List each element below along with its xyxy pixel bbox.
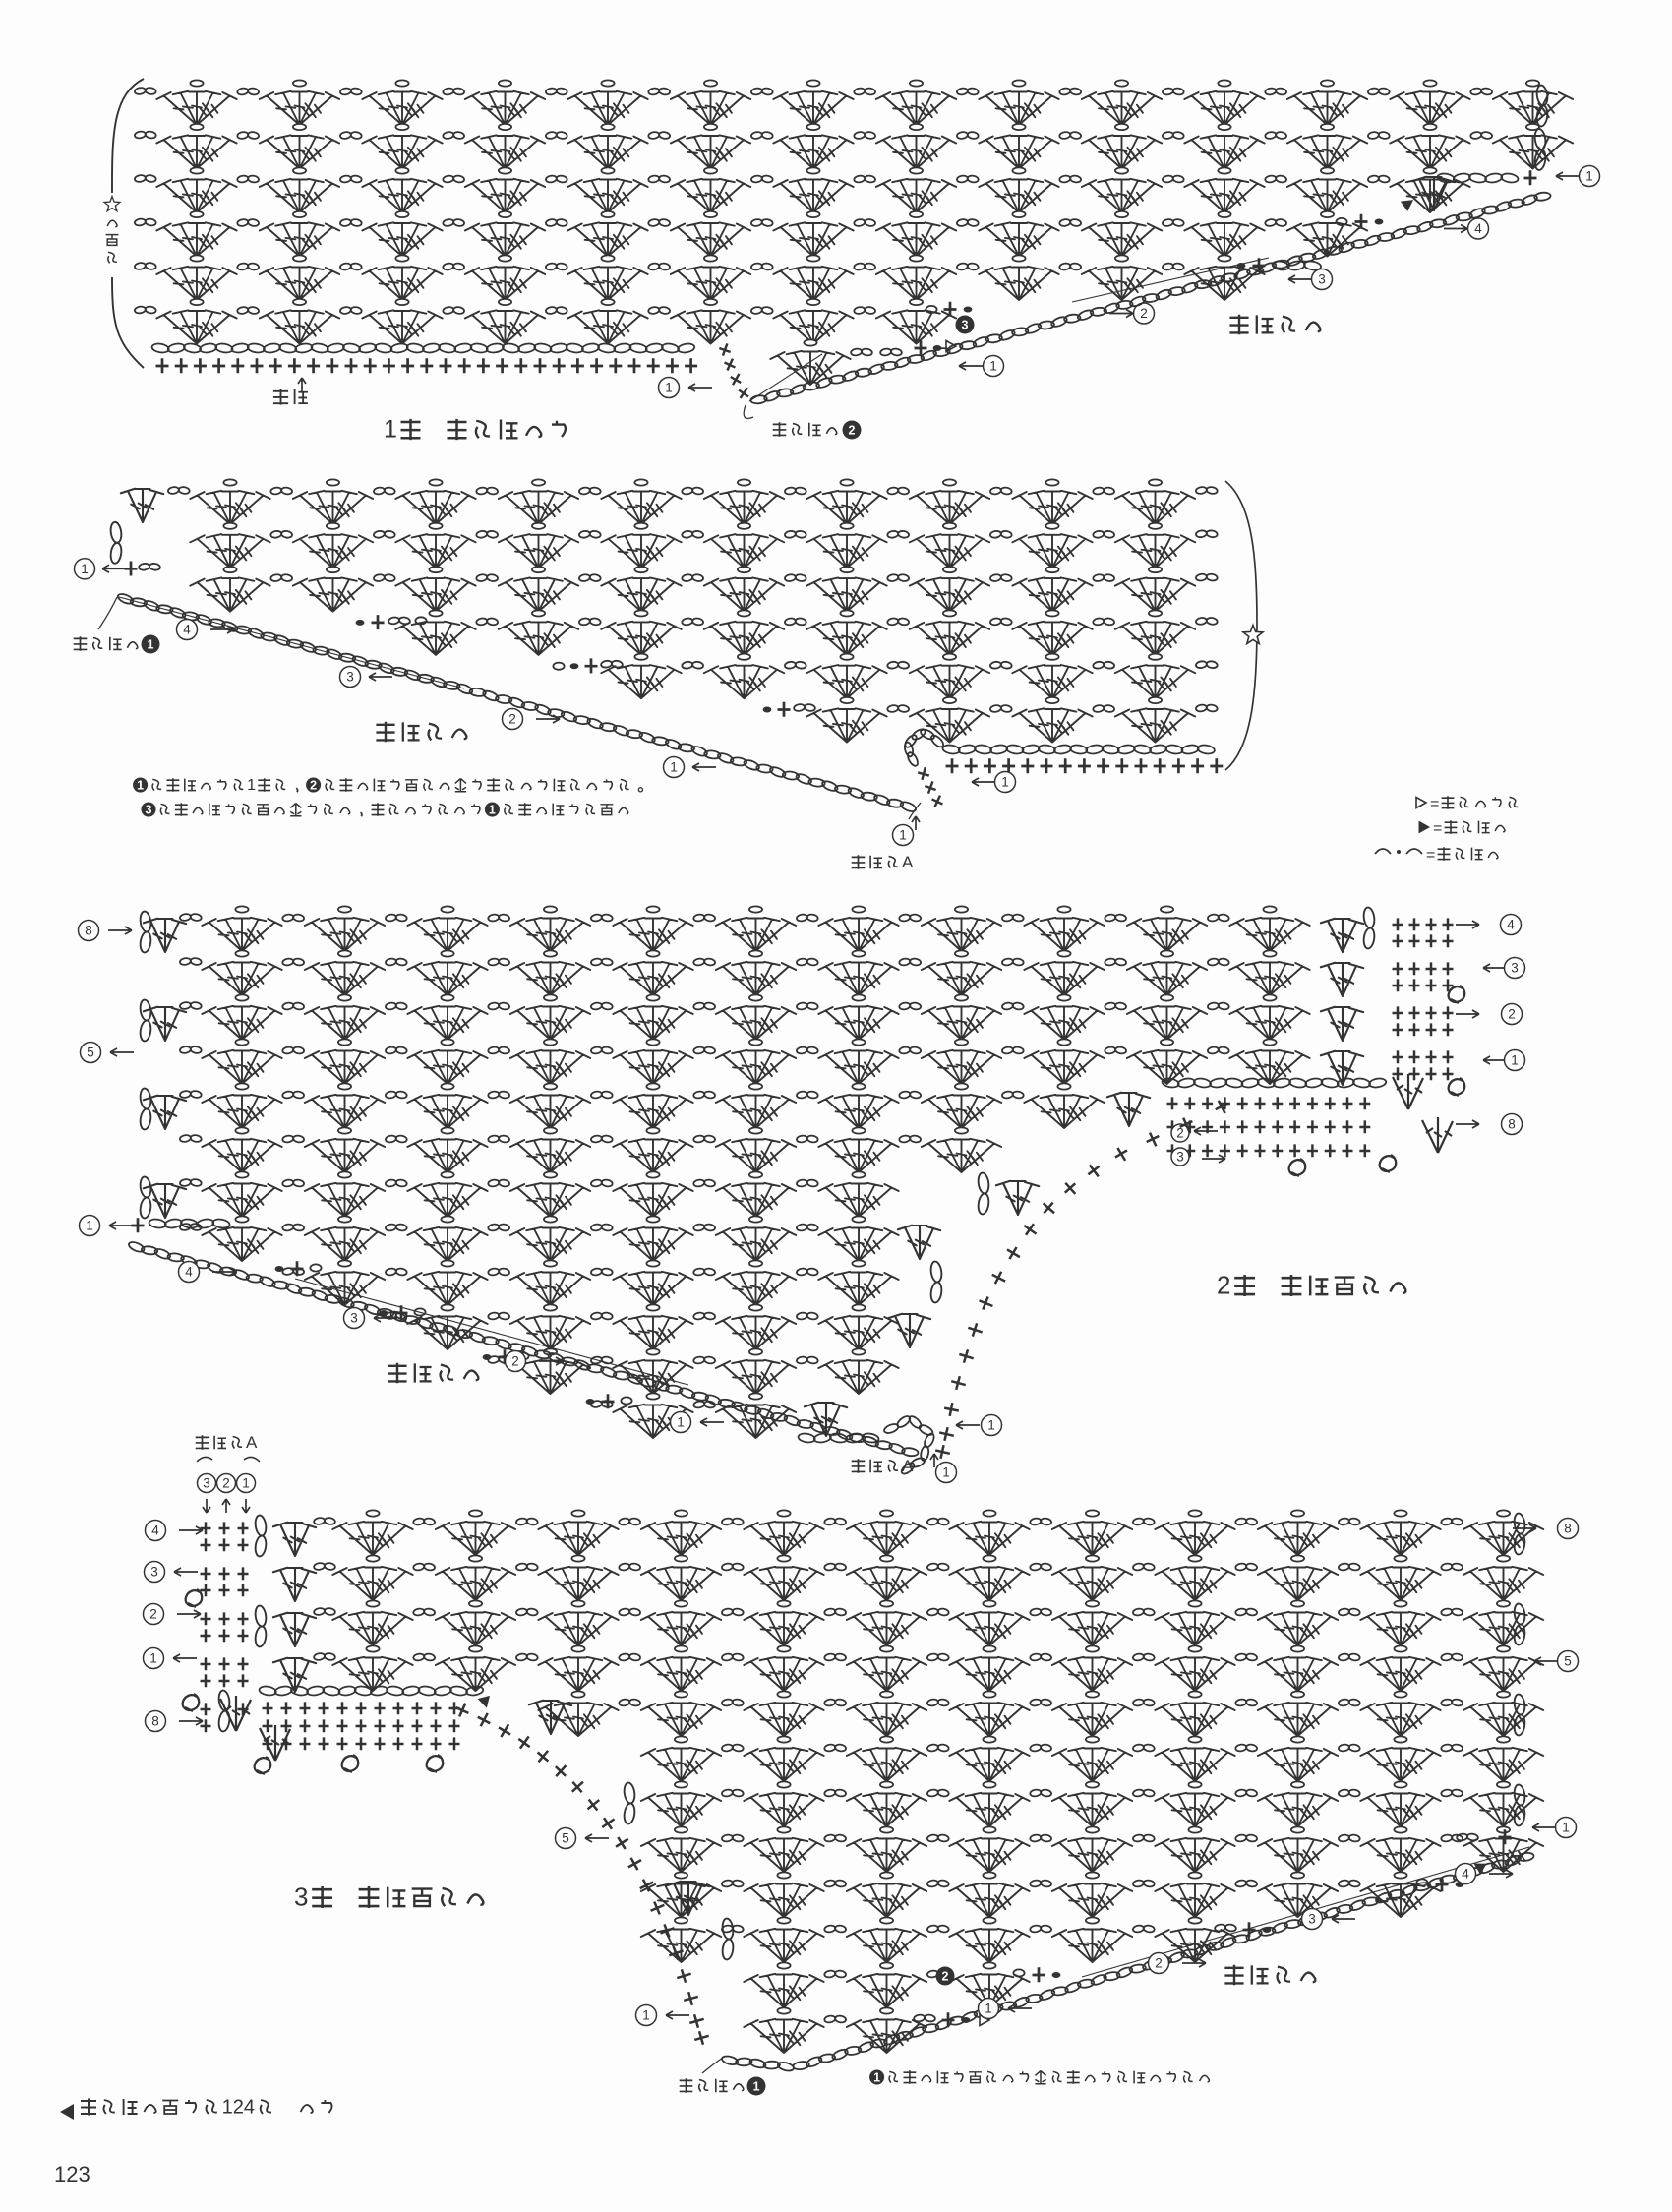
- svg-text:1: 1: [987, 1418, 995, 1433]
- svg-text:3: 3: [1318, 272, 1326, 287]
- svg-text:3: 3: [294, 1882, 308, 1911]
- svg-text:=: =: [1426, 847, 1435, 864]
- svg-text:1: 1: [989, 359, 997, 374]
- svg-text:2: 2: [1508, 1007, 1516, 1022]
- svg-text:3: 3: [1308, 1912, 1316, 1927]
- svg-text:A: A: [902, 853, 914, 871]
- svg-text:=: =: [1430, 796, 1439, 812]
- svg-text:1: 1: [753, 2079, 760, 2093]
- svg-text:1: 1: [942, 1465, 950, 1480]
- svg-text:1: 1: [384, 416, 397, 444]
- svg-text:1: 1: [81, 562, 89, 576]
- svg-text:1: 1: [670, 760, 678, 775]
- svg-text:2: 2: [1140, 306, 1148, 321]
- svg-text:8: 8: [1508, 1117, 1516, 1132]
- svg-text:5: 5: [562, 1831, 569, 1846]
- svg-text:3: 3: [346, 670, 354, 685]
- svg-text:1: 1: [899, 828, 907, 843]
- svg-text:1: 1: [677, 1415, 685, 1430]
- svg-text:1: 1: [1585, 169, 1593, 184]
- svg-text:3: 3: [203, 1476, 210, 1491]
- svg-text:2: 2: [222, 1476, 230, 1491]
- svg-text:8: 8: [151, 1714, 159, 1729]
- svg-text:3: 3: [962, 318, 969, 331]
- svg-text:3: 3: [150, 1565, 158, 1580]
- svg-text:1: 1: [1511, 1053, 1519, 1068]
- svg-text:8: 8: [85, 924, 92, 938]
- svg-text:1: 1: [665, 381, 673, 395]
- svg-text:2: 2: [149, 1607, 157, 1622]
- svg-text:1: 1: [873, 2070, 880, 2084]
- svg-text:1: 1: [985, 2002, 992, 2016]
- svg-text:1: 1: [149, 1651, 157, 1666]
- svg-text:2: 2: [1217, 1270, 1230, 1299]
- svg-text:2: 2: [849, 423, 856, 437]
- svg-text:4: 4: [1507, 918, 1515, 932]
- svg-text:4: 4: [1474, 221, 1482, 236]
- svg-text:8: 8: [1564, 1522, 1572, 1536]
- svg-text:A: A: [246, 1433, 258, 1452]
- svg-text:A: A: [902, 1457, 914, 1475]
- svg-text:2: 2: [1155, 1956, 1163, 1971]
- svg-text:5: 5: [1564, 1654, 1572, 1669]
- svg-text:=: =: [1433, 820, 1442, 837]
- svg-text:1: 1: [1562, 1821, 1570, 1835]
- svg-text:1: 1: [1001, 775, 1009, 790]
- svg-text:4: 4: [185, 1265, 193, 1280]
- svg-text:2: 2: [942, 1969, 949, 1983]
- svg-text:4: 4: [1462, 1867, 1469, 1882]
- svg-text:3: 3: [146, 803, 152, 816]
- svg-text:1: 1: [247, 777, 256, 794]
- svg-text:3: 3: [1176, 1150, 1184, 1165]
- svg-text:3: 3: [350, 1311, 358, 1326]
- svg-text:2: 2: [1176, 1126, 1184, 1141]
- svg-text:5: 5: [87, 1046, 94, 1060]
- svg-text:1: 1: [86, 1219, 93, 1233]
- svg-text:1: 1: [489, 803, 496, 816]
- svg-text:1: 1: [137, 778, 144, 792]
- svg-text:123: 123: [54, 2162, 90, 2186]
- svg-text:1: 1: [148, 637, 154, 651]
- svg-text:1: 1: [642, 2008, 650, 2023]
- svg-text:4: 4: [151, 1524, 159, 1538]
- svg-text:4: 4: [183, 623, 191, 637]
- svg-text:2: 2: [310, 778, 317, 792]
- svg-text:1: 1: [242, 1476, 250, 1491]
- svg-text:3: 3: [1511, 961, 1519, 976]
- svg-text:124: 124: [222, 2096, 255, 2118]
- svg-text:2: 2: [508, 712, 516, 727]
- svg-text:2: 2: [511, 1354, 519, 1369]
